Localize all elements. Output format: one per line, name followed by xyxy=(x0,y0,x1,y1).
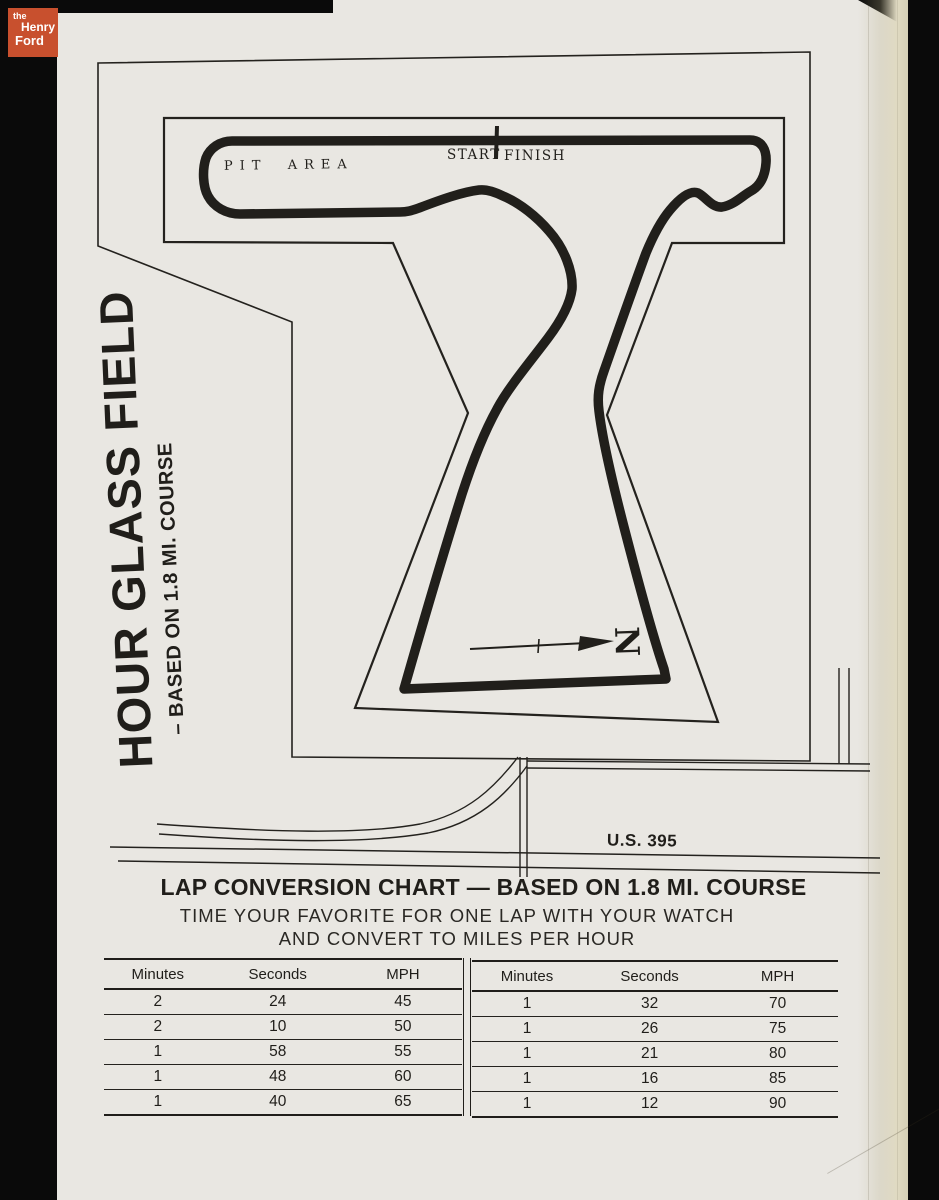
table-row: 15855 xyxy=(104,1040,462,1065)
table-cell: 10 xyxy=(212,1015,344,1040)
column-header: Minutes xyxy=(472,961,582,991)
table-cell: 1 xyxy=(104,1040,212,1065)
logo-text-ford: Ford xyxy=(15,34,44,47)
table-cell: 75 xyxy=(717,1017,838,1042)
north-arrow-icon xyxy=(470,636,614,653)
pit-area-label: PIT AREA xyxy=(224,157,354,174)
table-row: 12180 xyxy=(472,1042,838,1067)
table-row: 12675 xyxy=(472,1017,838,1042)
course-boundary xyxy=(164,118,784,722)
table-cell: 70 xyxy=(717,991,838,1017)
table-cell: 1 xyxy=(104,1065,212,1090)
column-header: MPH xyxy=(344,959,462,989)
table-cell: 12 xyxy=(582,1092,717,1118)
finish-label: FINISH xyxy=(504,148,566,164)
logo-text-henry: Henry xyxy=(21,21,55,33)
table-cell: 1 xyxy=(472,1092,582,1118)
henry-ford-logo: the Henry Ford xyxy=(8,8,58,57)
table-cell: 85 xyxy=(717,1067,838,1092)
table-cell: 65 xyxy=(344,1090,462,1116)
table-cell: 2 xyxy=(104,989,212,1015)
start-label: START xyxy=(447,147,501,163)
table-cell: 48 xyxy=(212,1065,344,1090)
chart-title: LAP CONVERSION CHART — BASED ON 1.8 MI. … xyxy=(28,874,939,901)
table-cell: 90 xyxy=(717,1092,838,1118)
table-row: 22445 xyxy=(104,989,462,1015)
table-row: 14065 xyxy=(104,1090,462,1116)
table-row: 21050 xyxy=(104,1015,462,1040)
table-cell: 16 xyxy=(582,1067,717,1092)
table-divider xyxy=(463,958,471,1116)
table-cell: 21 xyxy=(582,1042,717,1067)
table-cell: 55 xyxy=(344,1040,462,1065)
table-row: 11290 xyxy=(472,1092,838,1118)
lap-table-right: MinutesSecondsMPH13270126751218011685112… xyxy=(472,960,838,1118)
table-cell: 1 xyxy=(472,1067,582,1092)
race-track-outline xyxy=(204,140,767,689)
access-road xyxy=(157,668,870,877)
column-header: Minutes xyxy=(104,959,212,989)
table-cell: 80 xyxy=(717,1042,838,1067)
column-header: Seconds xyxy=(212,959,344,989)
table-cell: 45 xyxy=(344,989,462,1015)
table-cell: 1 xyxy=(104,1090,212,1116)
highway-us-395 xyxy=(110,847,880,873)
table-cell: 32 xyxy=(582,991,717,1017)
highway-label: U.S. 395 xyxy=(607,831,677,852)
lap-table-left: MinutesSecondsMPH22445210501585514860140… xyxy=(104,958,462,1116)
chart-subtitle-line2: AND CONVERT TO MILES PER HOUR xyxy=(0,928,914,950)
table-cell: 1 xyxy=(472,991,582,1017)
north-label: N xyxy=(607,620,647,663)
table-row: 11685 xyxy=(472,1067,838,1092)
table-cell: 58 xyxy=(212,1040,344,1065)
lap-conversion-tables: MinutesSecondsMPH22445210501585514860140… xyxy=(104,958,839,1116)
table-row: 14860 xyxy=(104,1065,462,1090)
table-cell: 24 xyxy=(212,989,344,1015)
table-cell: 2 xyxy=(104,1015,212,1040)
scanned-page: the Henry Ford PIT AREA START FINISH N U… xyxy=(0,0,939,1200)
column-header: MPH xyxy=(717,961,838,991)
table-cell: 40 xyxy=(212,1090,344,1116)
table-cell: 1 xyxy=(472,1017,582,1042)
table-cell: 1 xyxy=(472,1042,582,1067)
chart-subtitle-line1: TIME YOUR FAVORITE FOR ONE LAP WITH YOUR… xyxy=(0,905,914,927)
table-cell: 60 xyxy=(344,1065,462,1090)
column-header: Seconds xyxy=(582,961,717,991)
table-cell: 26 xyxy=(582,1017,717,1042)
table-cell: 50 xyxy=(344,1015,462,1040)
table-row: 13270 xyxy=(472,991,838,1017)
